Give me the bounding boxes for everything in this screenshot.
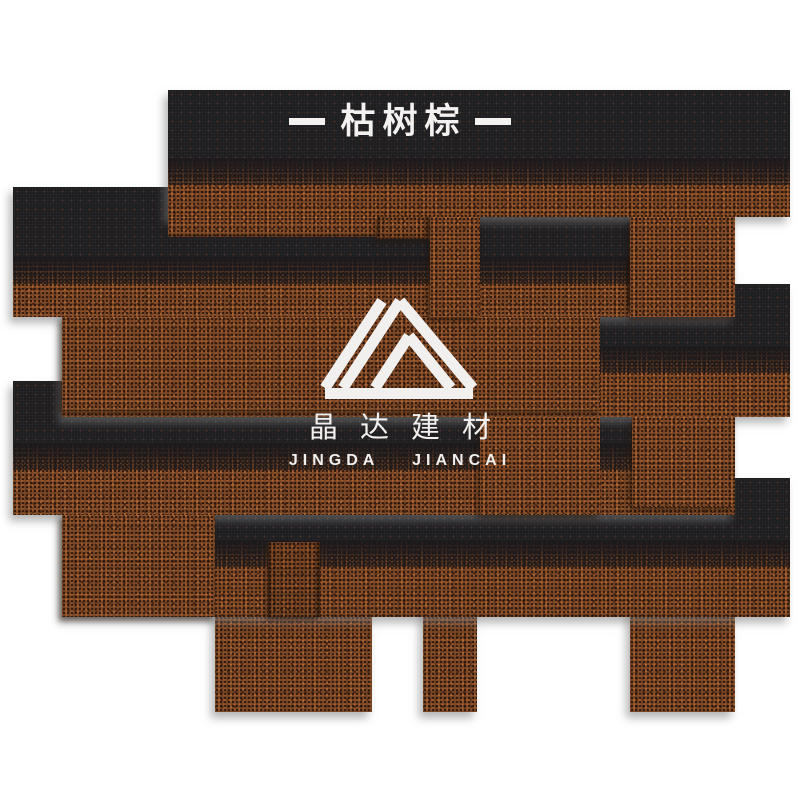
brand-name-cn: 晶达建材	[0, 413, 800, 445]
shingle-tab	[377, 217, 430, 239]
shingle-slot-tab	[268, 542, 320, 617]
color-name-text: 枯树棕	[340, 104, 466, 139]
brand-name-en: JINGDA JIANCAI	[0, 452, 800, 470]
shingle-tab	[62, 515, 215, 617]
title-dash-left	[289, 118, 325, 125]
title-dash-right	[475, 118, 511, 125]
color-title: 枯树棕	[0, 101, 800, 141]
shingle-product-photo: 枯树棕 晶达建材 JINGDA JIANCAI	[0, 0, 800, 800]
mountain-logo-icon	[303, 296, 497, 400]
shingle-tab	[168, 217, 377, 237]
brand-watermark: 晶达建材 JINGDA JIANCAI	[0, 296, 800, 469]
